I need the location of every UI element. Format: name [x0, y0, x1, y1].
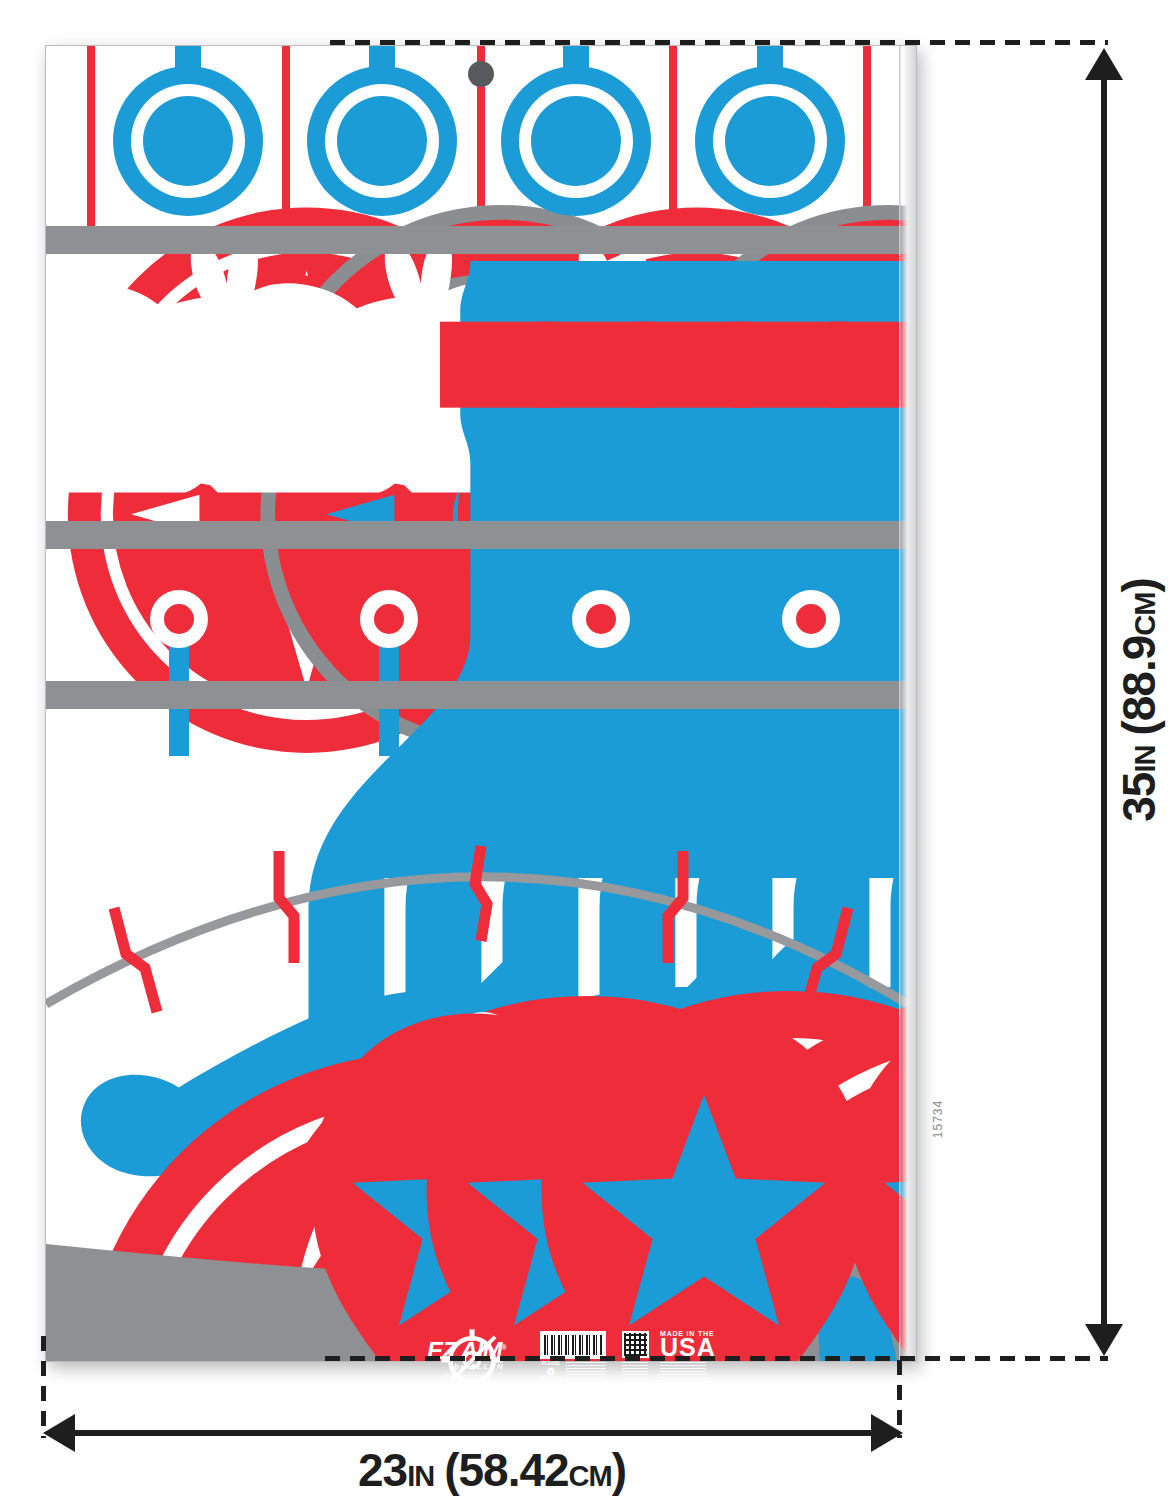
arrow-down-icon [1085, 1324, 1123, 1356]
shelf [46, 681, 916, 709]
company-address: Allen Company, Inc. Louisville, CO 80027… [442, 1373, 493, 1394]
width-dimension-label: 23IN(58.42CM) [358, 1443, 626, 1497]
page-background: EZ AIM® by ALLEN Allen Company, Inc. Lou… [0, 0, 1174, 1500]
shelf [46, 521, 916, 549]
top-extension-line [330, 40, 1108, 45]
recycle-note: PLEASE ♻ RECYCLE [540, 1362, 562, 1382]
arrow-right-icon [871, 1414, 903, 1452]
brand-byline: by ALLEN [454, 1362, 504, 1371]
target-poster-art [46, 46, 916, 1361]
bottom-extension-line [325, 1356, 1108, 1361]
sheet-edge [899, 46, 916, 1361]
target-poster: EZ AIM® by ALLEN Allen Company, Inc. Lou… [45, 45, 917, 1362]
fine-print [660, 1362, 706, 1378]
height-dimension-label: 35IN(88.9CM) [1112, 578, 1166, 821]
warning-fine-print [566, 1362, 606, 1378]
barcode [540, 1331, 606, 1359]
hang-hole-knob [468, 61, 494, 87]
shelf [46, 226, 916, 254]
item-number: 15734 [931, 1089, 945, 1149]
fine-print [622, 1362, 648, 1378]
qr-code [622, 1331, 649, 1358]
